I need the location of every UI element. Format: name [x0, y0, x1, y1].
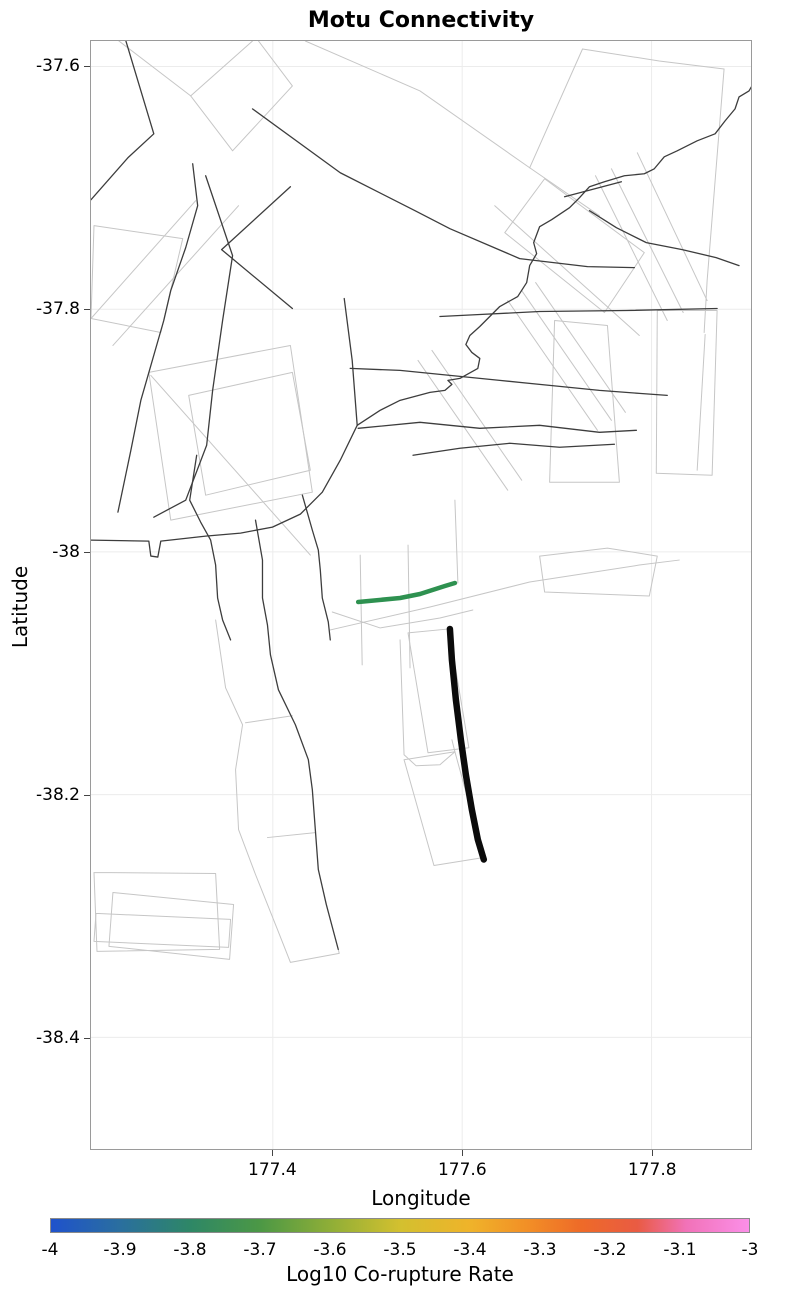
fault-outline	[94, 913, 231, 947]
colorbar-tick-label: -3.1	[650, 1240, 710, 1260]
y-axis-label: Latitude	[8, 547, 32, 667]
colorbar-tick-label: -3.7	[230, 1240, 290, 1260]
colorbar-tick-label: -3.6	[300, 1240, 360, 1260]
fault-outline	[408, 545, 410, 668]
fault-outline	[595, 176, 667, 321]
fault-outline	[246, 716, 293, 723]
x-tick-mark	[652, 1150, 653, 1156]
y-tick-mark	[84, 66, 90, 67]
x-tick-label: 177.6	[422, 1160, 502, 1180]
fault-trace	[440, 309, 717, 317]
fault-map-canvas	[91, 41, 751, 1149]
fault-outline	[305, 41, 599, 216]
colorbar-tick-label: -3.4	[440, 1240, 500, 1260]
y-tick-label: -37.8	[2, 299, 80, 319]
fault-trace	[413, 443, 614, 455]
x-axis-label: Longitude	[90, 1186, 752, 1210]
chart-title: Motu Connectivity	[90, 8, 752, 33]
fault-outline	[550, 320, 620, 482]
fault-outline	[656, 311, 717, 476]
fault-outline	[216, 620, 340, 962]
fault-outline	[495, 206, 640, 336]
colorbar-tick-label: -3.3	[510, 1240, 570, 1260]
y-tick-label: -38.2	[2, 785, 80, 805]
x-tick-label: 177.8	[612, 1160, 692, 1180]
fault-trace	[154, 176, 233, 517]
y-tick-mark	[84, 1038, 90, 1039]
fault-outline	[508, 301, 598, 431]
colorbar-gradient	[50, 1218, 750, 1233]
x-tick-label: 177.4	[232, 1160, 312, 1180]
fault-outline	[432, 350, 522, 480]
y-tick-label: -38	[2, 542, 80, 562]
y-tick-mark	[84, 552, 90, 553]
fault-trace	[256, 520, 339, 949]
y-tick-mark	[84, 795, 90, 796]
fault-trace	[222, 187, 293, 309]
y-tick-label: -38.4	[2, 1028, 80, 1048]
colorbar-tick-label: -3.5	[370, 1240, 430, 1260]
colorbar-tick-label: -3	[720, 1240, 780, 1260]
fault-outline	[151, 375, 311, 555]
fault-trace	[302, 495, 330, 640]
fault-trace	[91, 41, 154, 200]
fault-outline	[637, 153, 707, 301]
motu-source-fault-black	[450, 629, 484, 860]
x-tick-mark	[272, 1150, 273, 1156]
fault-outline	[360, 555, 362, 665]
fault-outline	[455, 500, 458, 583]
co-rupture-fault-green	[358, 583, 455, 602]
colorbar-tick-label: -3.9	[90, 1240, 150, 1260]
fault-trace	[589, 211, 739, 266]
fault-outline	[540, 548, 658, 596]
fault-outline	[91, 201, 196, 319]
fault-outline	[611, 169, 683, 313]
fault-outline	[191, 41, 293, 151]
x-tick-mark	[462, 1150, 463, 1156]
fault-outline	[267, 833, 315, 838]
colorbar-tick-label: -3.8	[160, 1240, 220, 1260]
colorbar-tick-label: -4	[20, 1240, 80, 1260]
y-tick-mark	[84, 309, 90, 310]
fault-trace	[253, 109, 635, 268]
fault-trace	[350, 368, 667, 395]
fault-outline	[149, 345, 313, 520]
fault-outline	[697, 334, 705, 470]
fault-trace	[344, 299, 357, 426]
fault-outline	[583, 49, 725, 332]
fault-trace	[565, 182, 622, 197]
fault-trace	[190, 455, 231, 640]
fault-outline	[119, 41, 253, 96]
fault-outline	[91, 226, 183, 333]
fault-trace	[118, 164, 198, 512]
fault-outline	[94, 872, 220, 951]
y-tick-label: -37.6	[2, 56, 80, 76]
fault-outline	[522, 291, 612, 421]
colorbar-tick-label: -3.2	[580, 1240, 640, 1260]
fault-outline	[189, 372, 311, 495]
map-plot-area	[90, 40, 752, 1150]
colorbar-label: Log10 Co-rupture Rate	[50, 1262, 750, 1286]
fault-outline	[332, 610, 473, 628]
fault-trace	[358, 422, 636, 432]
